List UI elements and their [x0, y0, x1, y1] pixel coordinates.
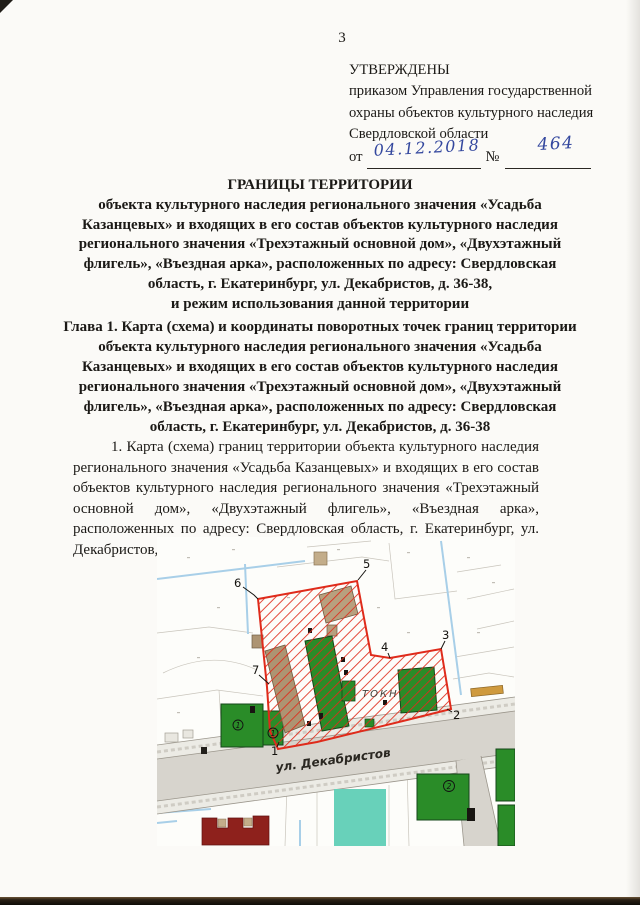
map-point-label: 4 — [381, 640, 388, 654]
title-line: область, г. Екатеринбург, ул. Декабристо… — [45, 275, 595, 295]
title-line: ГРАНИЦЫ ТЕРРИТОРИИ — [45, 176, 595, 196]
approval-line: охраны объектов культурного наследия — [349, 103, 615, 124]
building-mark: 1 — [271, 729, 276, 738]
map-point-label: 7 — [252, 663, 259, 677]
approval-title: УТВЕРЖДЕНЫ — [349, 60, 615, 81]
scan-artifact-corner — [0, 0, 13, 13]
map-point-label: 2 — [453, 708, 460, 722]
approval-line: приказом Управления государственной — [349, 81, 615, 102]
pond — [334, 789, 386, 846]
chapter-line: область, г. Екатеринбург, ул. Декабристо… — [45, 417, 595, 437]
scan-edge-shade — [626, 0, 640, 897]
green-building — [221, 704, 263, 747]
title-line: флигель», «Въездная арка», расположенных… — [45, 255, 595, 275]
handwritten-number: 464 — [520, 132, 593, 156]
building-mark: 2 — [447, 782, 452, 791]
document-page: { "document": { "page_number": "3", "app… — [0, 0, 640, 905]
chapter-line: Казанцевых» и входящих в его состав объе… — [45, 357, 595, 377]
map-point-label: 3 — [442, 628, 449, 642]
document-title: ГРАНИЦЫ ТЕРРИТОРИИ объекта культурного н… — [45, 176, 595, 315]
title-line: и режим использования данной территории — [45, 295, 595, 315]
chapter-heading: Глава 1. Карта (схема) и координаты пово… — [45, 317, 595, 437]
from-label: от — [349, 147, 362, 168]
page-number: 3 — [330, 30, 354, 47]
okn-territory-label: ТОКН — [362, 689, 399, 700]
tan-building — [314, 552, 327, 565]
chapter-line: флигель», «Въездная арка», расположенных… — [45, 397, 595, 417]
title-line: регионального значения «Трехэтажный осно… — [45, 235, 595, 255]
map-point-label: 5 — [363, 557, 370, 571]
map-scheme: 1 2 3 4 5 6 7 ТОКН 1 1 2 ул. Декабристов — [157, 537, 515, 846]
map-point-label: 1 — [271, 744, 278, 758]
title-line: Казанцевых» и входящих в его состав объе… — [45, 216, 595, 236]
scan-artifact-bottom — [0, 897, 640, 905]
title-line: объекта культурного наследия регионально… — [45, 196, 595, 216]
map-point-label: 6 — [234, 576, 241, 590]
green-building — [417, 774, 469, 820]
small-black-mark — [201, 747, 207, 754]
map-image: 1 2 3 4 5 6 7 ТОКН 1 1 2 ул. Декабристов — [157, 537, 515, 846]
chapter-line: регионального значения «Трехэтажный осно… — [45, 377, 595, 397]
chapter-line: Глава 1. Карта (схема) и координаты пово… — [45, 317, 595, 337]
building-mark: 1 — [236, 721, 241, 730]
dark-red-building — [202, 816, 269, 845]
chapter-line: объекта культурного наследия регионально… — [45, 337, 595, 357]
